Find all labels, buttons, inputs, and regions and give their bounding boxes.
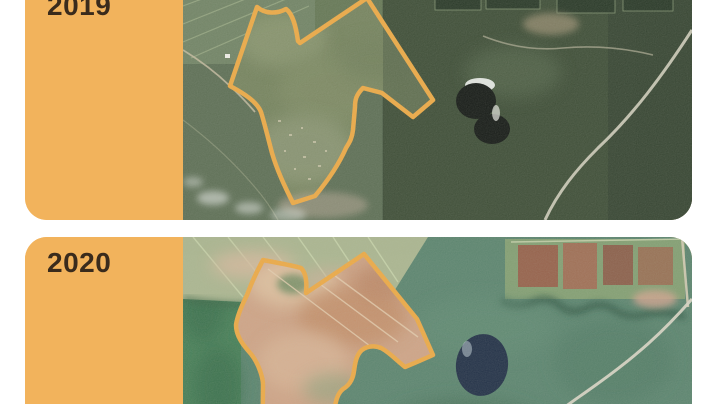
grain-overlay-2019 [183,0,692,220]
satellite-map-2019 [183,0,692,220]
satellite-image-2020 [183,237,692,404]
year-text-2020: 2020 [47,247,111,278]
panel-2019: 2019 [25,0,692,220]
grain-overlay-2020 [183,237,692,404]
satellite-image-2019 [183,0,692,220]
satellite-map-2020 [183,237,692,404]
panel-2020: 2020 [25,237,692,404]
year-label-2019: 2019 [25,0,183,220]
satellite-comparison-figure: 2019 [0,0,716,404]
year-text-2019: 2019 [47,0,111,21]
year-label-2020: 2020 [25,237,183,404]
